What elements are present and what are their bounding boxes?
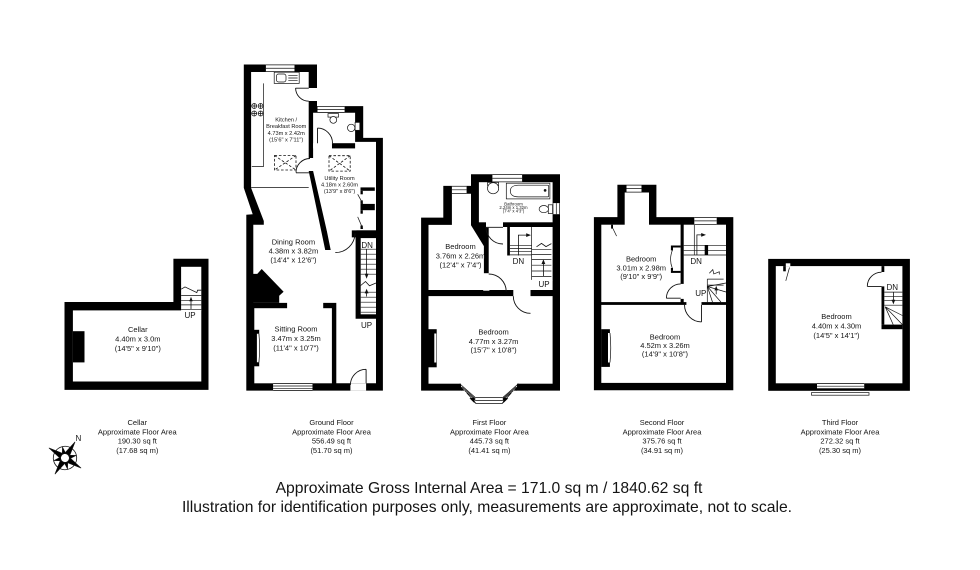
svg-text:UP: UP [539, 280, 550, 289]
svg-text:Breakfast Room: Breakfast Room [266, 124, 307, 130]
svg-text:4.52m x 3.26m: 4.52m x 3.26m [640, 341, 690, 350]
svg-text:Utility Room: Utility Room [324, 176, 355, 182]
svg-text:4.40m x 4.30m: 4.40m x 4.30m [812, 322, 862, 331]
svg-text:Cellar: Cellar [128, 418, 148, 427]
svg-text:Bedroom: Bedroom [445, 242, 475, 251]
svg-text:Dining Room: Dining Room [272, 237, 315, 246]
svg-text:(41.41 sq m): (41.41 sq m) [468, 446, 511, 455]
svg-text:Third Floor: Third Floor [822, 418, 859, 427]
svg-text:Kitchen /: Kitchen / [275, 117, 297, 123]
svg-text:3.01m x 2.98m: 3.01m x 2.98m [616, 263, 666, 272]
svg-text:(14'5" x 9'10"): (14'5" x 9'10") [115, 344, 162, 353]
svg-text:556.49 sq ft: 556.49 sq ft [312, 437, 352, 446]
svg-text:4.40m x 3.0m: 4.40m x 3.0m [115, 335, 160, 344]
svg-text:N: N [76, 434, 82, 443]
svg-text:4.18m x 2.60m: 4.18m x 2.60m [321, 183, 358, 189]
svg-text:375.76 sq ft: 375.76 sq ft [642, 437, 682, 446]
svg-text:(13'9" x 8'6"): (13'9" x 8'6") [324, 189, 356, 195]
svg-text:(15'7" x 10'8"): (15'7" x 10'8") [471, 346, 518, 355]
svg-text:Bedroom: Bedroom [821, 312, 851, 321]
svg-text:Ground Floor: Ground Floor [309, 418, 354, 427]
svg-text:3.47m x 3.25m: 3.47m x 3.25m [271, 334, 321, 343]
svg-text:Cellar: Cellar [128, 325, 148, 334]
svg-text:Bedroom: Bedroom [626, 254, 656, 263]
svg-text:DN: DN [513, 257, 525, 266]
svg-text:UP: UP [361, 321, 372, 330]
svg-text:DN: DN [361, 241, 373, 250]
svg-text:UP: UP [695, 289, 706, 298]
svg-text:Approximate Floor Area: Approximate Floor Area [623, 427, 703, 436]
svg-text:(17.68 sq m): (17.68 sq m) [116, 446, 159, 455]
svg-text:(14'5" x 14'1"): (14'5" x 14'1") [813, 331, 860, 340]
svg-text:Approximate Gross Internal Are: Approximate Gross Internal Area = 171.0 … [276, 480, 703, 497]
svg-text:(25.30 sq m): (25.30 sq m) [819, 446, 862, 455]
svg-text:First Floor: First Floor [473, 418, 507, 427]
svg-text:(14'4" x 12'6"): (14'4" x 12'6") [270, 255, 317, 264]
svg-text:(11'4" x 10'7"): (11'4" x 10'7") [273, 343, 319, 352]
svg-text:(51.70 sq m): (51.70 sq m) [310, 446, 353, 455]
svg-text:272.32 sq ft: 272.32 sq ft [820, 437, 860, 446]
svg-text:(15'6" x 7'11"): (15'6" x 7'11") [269, 137, 303, 143]
svg-text:Approximate Floor Area: Approximate Floor Area [98, 427, 178, 436]
svg-text:Illustration for identificatio: Illustration for identification purposes… [182, 499, 792, 516]
svg-text:(7'4" x 4'3"): (7'4" x 4'3") [503, 209, 525, 214]
svg-text:(34.91 sq m): (34.91 sq m) [641, 446, 684, 455]
svg-text:Approximate Floor Area: Approximate Floor Area [292, 427, 372, 436]
svg-text:(9'10" x 9'9"): (9'10" x 9'9") [620, 272, 662, 281]
svg-text:(12'4" x 7'4"): (12'4" x 7'4") [440, 260, 482, 269]
svg-text:UP: UP [184, 311, 195, 320]
svg-text:(14'9" x 10'8"): (14'9" x 10'8") [642, 350, 689, 359]
svg-text:Bedroom: Bedroom [478, 328, 508, 337]
svg-text:Approximate Floor Area: Approximate Floor Area [450, 427, 530, 436]
svg-text:Sitting Room: Sitting Room [275, 324, 318, 333]
svg-text:Second Floor: Second Floor [640, 418, 685, 427]
svg-text:445.73 sq ft: 445.73 sq ft [470, 437, 510, 446]
svg-text:DN: DN [887, 283, 899, 292]
svg-text:4.38m x 3.82m: 4.38m x 3.82m [269, 247, 319, 256]
svg-text:190.30 sq ft: 190.30 sq ft [118, 437, 158, 446]
svg-text:Approximate Floor Area: Approximate Floor Area [801, 427, 881, 436]
svg-text:3.76m x 2.26m: 3.76m x 2.26m [436, 251, 486, 260]
svg-text:DN: DN [690, 257, 702, 266]
svg-text:4.73m x 2.42m: 4.73m x 2.42m [268, 131, 305, 137]
